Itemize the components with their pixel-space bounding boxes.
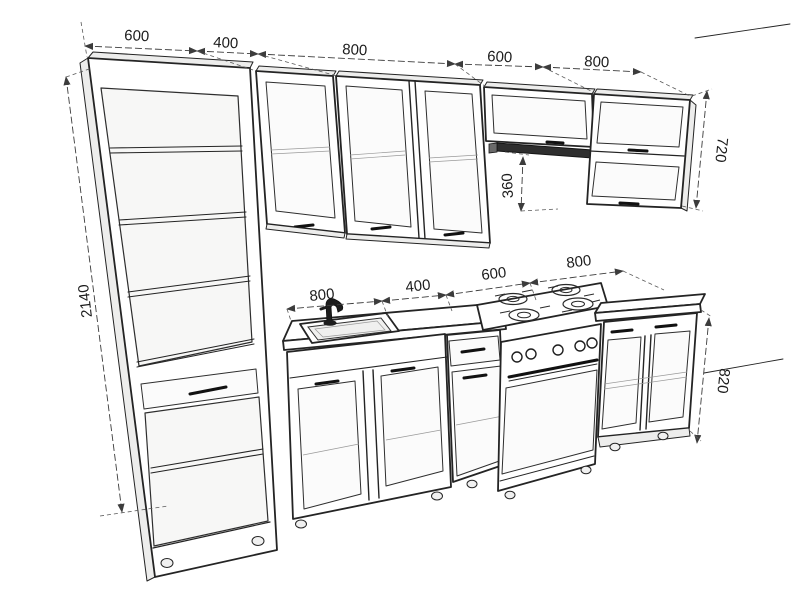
liftup-cabinet-top-handle [629, 150, 647, 151]
sink-cabinet-left-door [298, 381, 361, 509]
dimension-right-820: 820 [690, 310, 783, 443]
base-cabinet-800-left-handle [612, 330, 632, 332]
sink-cabinet-foot-left [296, 520, 307, 528]
liftup-cabinet-bottom-door [592, 162, 679, 200]
sink-cabinet-foot-right [432, 492, 443, 500]
extractor-hood-cap [489, 143, 497, 153]
stove-foot-left [505, 491, 515, 499]
drawing-canvas: 600 400 800 600 800 2140 720 360 800 400… [0, 0, 791, 592]
stove-foot-right [581, 466, 591, 474]
dim-label-top-600b: 600 [487, 48, 513, 66]
tall-cabinet-lower-opening [145, 397, 268, 546]
dimension-360: 360 [499, 152, 558, 211]
stray-extension-line-top-right [695, 24, 790, 38]
dim-label-820: 820 [713, 368, 733, 395]
kitchen-elevation-drawing: 600 400 800 600 800 2140 720 360 800 400… [0, 0, 791, 592]
hood-cabinet-flip-door [492, 95, 587, 139]
dim-label-counter-800b: 800 [565, 252, 592, 272]
dim-label-counter-800a: 800 [309, 285, 336, 305]
wall-cabinet-800-left-handle [372, 227, 390, 229]
hood-cabinet-handle [547, 142, 563, 143]
dim-label-counter-400: 400 [405, 276, 432, 296]
base-cabinet-400 [447, 330, 506, 488]
sink-cabinet-800 [287, 334, 451, 528]
dim-label-top-800b: 800 [584, 53, 610, 71]
tall-cabinet-foot-left [161, 559, 173, 568]
wall-cabinet-400-handle [295, 225, 313, 227]
wall-cabinet-800 [336, 71, 490, 248]
sink-cabinet-right-door [381, 367, 443, 486]
liftup-cabinet-800 [587, 89, 696, 211]
wall-cabinet-800-left-door [346, 86, 411, 227]
wall-cabinet-400 [256, 66, 345, 238]
dim-label-top-600a: 600 [124, 27, 150, 45]
dim-label-top-400: 400 [213, 34, 239, 52]
tall-cabinet-foot-right [252, 537, 264, 546]
tall-cabinet [80, 52, 277, 581]
base-cabinet-800-foot-right [658, 432, 668, 440]
base-cabinet-800-right-handle [656, 325, 676, 327]
dim-label-360: 360 [499, 173, 517, 199]
dim-label-top-800a: 800 [342, 41, 368, 59]
base-cabinet-400-foot [467, 480, 477, 488]
base-cabinet-800-foot-left [610, 443, 620, 451]
hob-surface [477, 283, 608, 330]
liftup-cabinet-bottom-handle [620, 203, 638, 204]
dim-label-counter-600: 600 [480, 264, 507, 284]
wall-cabinet-800-right-handle [445, 233, 463, 235]
hood-cabinet-600 [484, 82, 595, 158]
liftup-cabinet-top-door [597, 102, 683, 147]
dimension-right-720: 720 [682, 24, 790, 211]
dim-label-720: 720 [711, 137, 731, 164]
base-cabinet-800-left-door [602, 337, 641, 429]
extension-line [81, 22, 87, 57]
base-cabinet-800 [598, 313, 697, 451]
